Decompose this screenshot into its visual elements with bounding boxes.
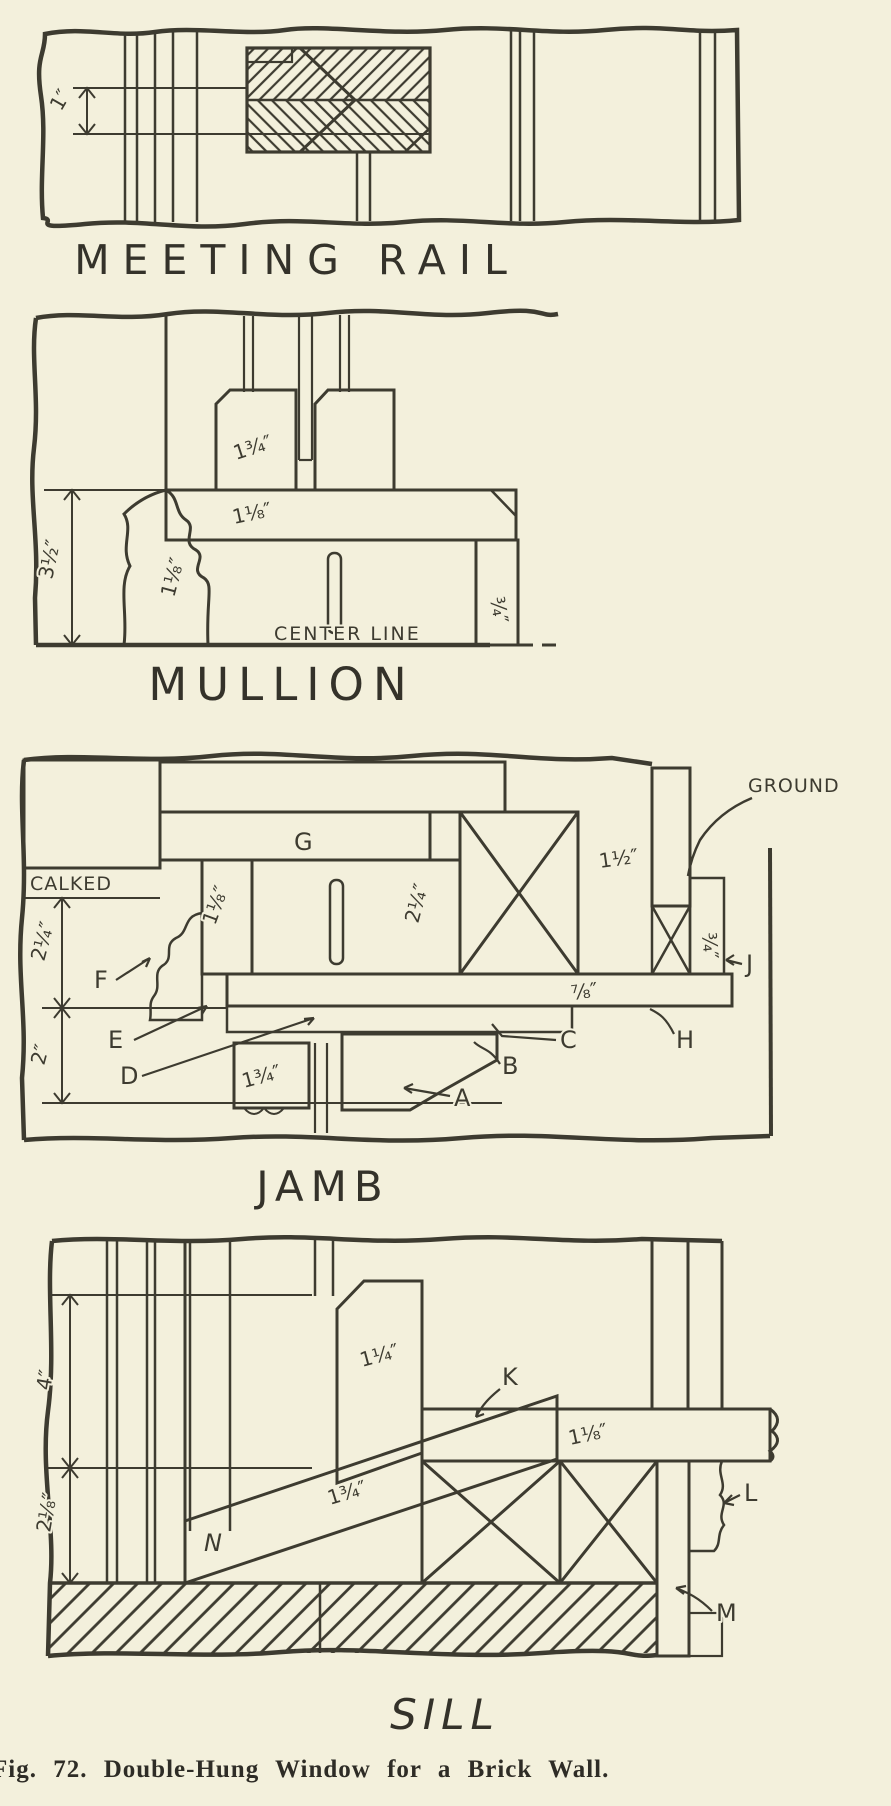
part-label-d: D xyxy=(120,1062,138,1090)
dim-brick-courses: 4″ xyxy=(31,1368,58,1392)
part-label-h: H xyxy=(676,1026,694,1054)
part-label-m: M xyxy=(716,1599,737,1627)
mullion-wall-lines xyxy=(166,315,349,490)
part-label-j: J xyxy=(744,950,753,978)
figure-caption: Fig. 72. Double-Hung Window for a Brick … xyxy=(0,1756,872,1784)
meeting-rail-title: MEETING RAIL xyxy=(62,236,532,284)
mullion-center-slot xyxy=(328,553,341,633)
brick-base xyxy=(48,1583,657,1653)
mullion-head-band: 1⅛″ xyxy=(166,490,516,540)
jamb-wall-bands xyxy=(160,762,505,860)
center-line-label: CENTER LINE xyxy=(274,623,421,645)
dim-backing: 2″ xyxy=(26,1042,54,1068)
mullion-outside-casing: ¾″ xyxy=(476,540,518,645)
dim-stool: 1⅛″ xyxy=(566,1418,610,1450)
part-label-a: A xyxy=(454,1084,471,1112)
dim-sash-opening: 2¼″ xyxy=(400,881,433,925)
dim-jamb-sash-stile: 1¾″ xyxy=(239,1059,283,1092)
sill-dimensions: 4″ 2⅛″ xyxy=(31,1295,312,1583)
part-label-b: B xyxy=(502,1052,518,1080)
mullion-depth-dimension: 3½″ xyxy=(33,490,166,645)
sill-wall-lines xyxy=(107,1240,722,1583)
jamb-casing-strip: 1⅛″ xyxy=(150,860,252,1020)
ground-leader xyxy=(688,798,752,876)
dim-outside-casing: ¾″ xyxy=(485,595,513,626)
dim-mullion-sash-stile: 1¾″ xyxy=(230,430,275,465)
meeting-rail-drawing: 1″ xyxy=(25,16,765,236)
jamb-opening: 2¼″ xyxy=(252,860,460,974)
blind-stop-band: ⅞″ xyxy=(227,974,732,1032)
sill-drawing: N 1¾″ 1¼″ 1⅛″ 4″ 2⅛″ K L xyxy=(22,1231,812,1663)
dim-bottom-rail: 1¼″ xyxy=(357,1338,401,1371)
dim-mullion-casing: 1⅛″ xyxy=(156,555,189,599)
part-label-e: E xyxy=(108,1026,123,1054)
part-label-g: G xyxy=(294,828,313,856)
mullion-drawing: 1¾″ 1⅛″ ¾″ 1⅛″ CENTER LINE 3½″ xyxy=(28,298,573,653)
mullion-title: MULLION xyxy=(132,658,432,711)
ground-strip-piece: ¾″ xyxy=(690,878,724,974)
part-label-n: N xyxy=(204,1529,222,1557)
part-label-c: C xyxy=(560,1026,577,1054)
wood-sill: N 1¾″ xyxy=(185,1396,557,1583)
bottom-rail-section: 1¼″ xyxy=(337,1281,422,1483)
scanned-book-page: 1″ MEETING RAIL 1¾″ 1⅛″ ¾″ 1⅛″ CENTER xyxy=(0,0,891,1806)
sill-title: SILL xyxy=(340,1690,550,1739)
mullion-sash-stiles: 1¾″ xyxy=(216,390,394,490)
stud-box: 1½″ xyxy=(460,812,640,974)
part-label-k: K xyxy=(502,1363,519,1391)
dim-rail-thickness: 1″ xyxy=(45,85,76,114)
dim-head-jamb: 1⅛″ xyxy=(230,497,274,529)
sill-stud-boxes xyxy=(422,1461,657,1583)
dim-blind-stop: ⅞″ xyxy=(569,977,599,1005)
dim-stud: 1½″ xyxy=(597,844,640,873)
plaster-ground-strip xyxy=(652,768,690,974)
meeting-rail-section xyxy=(247,48,430,152)
jamb-drawing: CALKED G 1½″ GROUND ¾″ ⅞″ 1⅛″ 2¼″ 1¾″ xyxy=(12,718,887,1163)
jamb-title: JAMB xyxy=(228,1162,418,1211)
calked-note: CALKED xyxy=(30,873,112,895)
dim-mullion-depth: 3½″ xyxy=(33,537,65,581)
ground-note: GROUND xyxy=(748,775,840,797)
dim-brick-reveal: 2¼″ xyxy=(26,919,59,963)
sill-plaster-ground xyxy=(657,1461,724,1656)
part-label-f: F xyxy=(94,966,108,994)
dim-ground-strip: ¾″ xyxy=(697,931,723,960)
part-label-l: L xyxy=(744,1479,758,1507)
dim-sill-height: 2⅛″ xyxy=(31,1491,62,1534)
